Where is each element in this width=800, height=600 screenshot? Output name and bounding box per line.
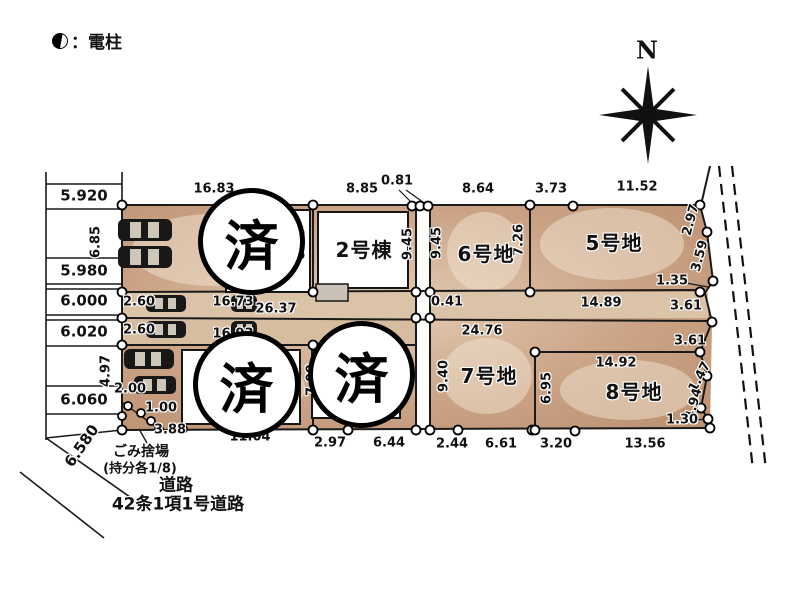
dimension-label: 6.95 <box>541 372 554 404</box>
dimension-label: 8.64 <box>462 183 494 196</box>
sold-stamp: 済 <box>193 331 300 438</box>
sold-stamp: 済 <box>198 188 305 295</box>
compass-rose-icon <box>599 66 697 164</box>
dimension-label: 2.60 <box>123 324 155 337</box>
utility-pole-icon <box>52 33 68 49</box>
dimension-label: 8.85 <box>346 183 378 196</box>
dimension-label: 9.40 <box>438 360 451 392</box>
lot-5-label: 5号地 <box>586 233 643 253</box>
dimension-label: 3.73 <box>535 183 567 196</box>
lot-8-label: 8号地 <box>606 382 663 402</box>
site-plan: ：電柱 N 済 済 済 16.838.850.818.643.7311.526.… <box>0 0 800 600</box>
dimension-label: 6.85 <box>90 226 103 258</box>
north-indicator: N <box>636 36 658 65</box>
dimension-label: 1.35 <box>656 275 688 288</box>
building-2-label: 2号棟 <box>336 240 393 260</box>
dimension-label: 6.060 <box>60 393 107 408</box>
dimension-label: 14.89 <box>580 297 621 310</box>
dimension-label: 13.56 <box>624 438 665 451</box>
dimension-label: 16.73 <box>212 296 253 309</box>
dimension-label: 6.61 <box>485 438 517 451</box>
dimension-label: 24.76 <box>461 325 502 338</box>
road-label: 道路 <box>159 478 193 495</box>
dimension-label: 11.52 <box>616 181 657 194</box>
dimension-label: 0.81 <box>381 175 413 188</box>
lot-6-label: 6号地 <box>458 244 515 264</box>
dimension-label: 5.980 <box>60 264 107 279</box>
dimension-label: 26.37 <box>255 303 296 316</box>
dimension-label: 2.97 <box>314 437 346 450</box>
dimension-label: 14.92 <box>595 357 636 370</box>
legend: ：電柱 <box>52 28 122 53</box>
dimension-label: 9.45 <box>431 227 444 259</box>
dimension-label: 3.20 <box>540 438 572 451</box>
dimension-label: 9.45 <box>402 228 415 260</box>
dimension-label: 3.88 <box>154 424 186 437</box>
dimension-label: 3.61 <box>670 300 702 313</box>
dashed-road-edge <box>719 166 766 470</box>
dimension-label: 2.60 <box>123 296 155 309</box>
garbage-share-label: (持分各1/8) <box>103 463 177 476</box>
dimension-label: 2.00 <box>114 383 146 396</box>
dimension-label: 6.000 <box>60 294 107 309</box>
dimension-label: 6.44 <box>373 437 405 450</box>
dimension-label: 6.020 <box>60 325 107 340</box>
dimension-label: 1.00 <box>145 402 177 415</box>
dimension-label: 3.61 <box>674 335 706 348</box>
legend-label: ：電柱 <box>71 28 122 53</box>
road-type-label: 42条1項1号道路 <box>112 497 244 514</box>
dimension-label: 1.30 <box>666 414 698 427</box>
dimension-label: 5.920 <box>60 189 107 204</box>
sold-stamp: 済 <box>308 321 415 428</box>
dimension-label: 4.97 <box>100 355 113 387</box>
garbage-area-label: ごみ捨場 <box>113 445 169 459</box>
dimension-label: 2.44 <box>436 438 468 451</box>
lot-7-label: 7号地 <box>461 366 518 386</box>
dimension-label: 0.41 <box>431 296 463 309</box>
